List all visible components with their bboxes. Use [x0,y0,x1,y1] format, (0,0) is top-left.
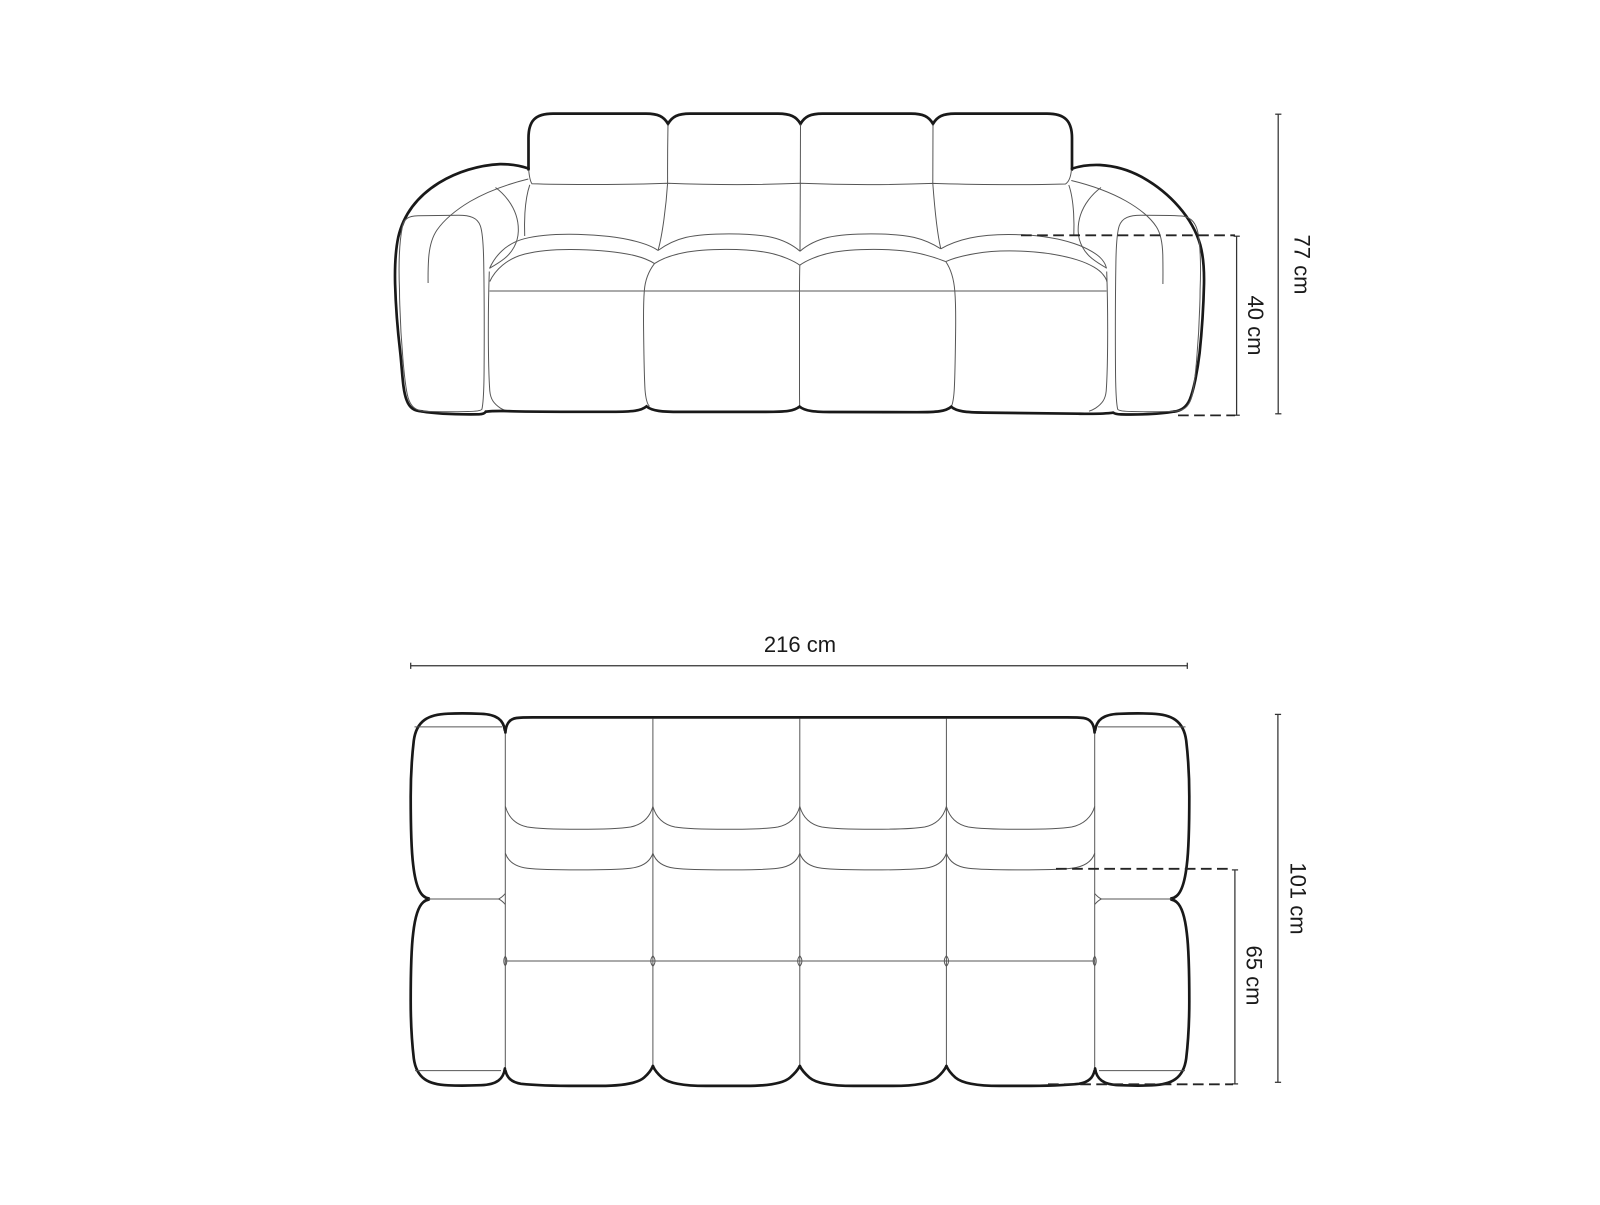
svg-text:216 cm: 216 cm [764,632,836,657]
svg-text:65 cm: 65 cm [1241,946,1266,1006]
svg-text:40 cm: 40 cm [1243,296,1268,356]
svg-text:77 cm: 77 cm [1289,235,1314,295]
svg-text:101 cm: 101 cm [1285,862,1310,934]
